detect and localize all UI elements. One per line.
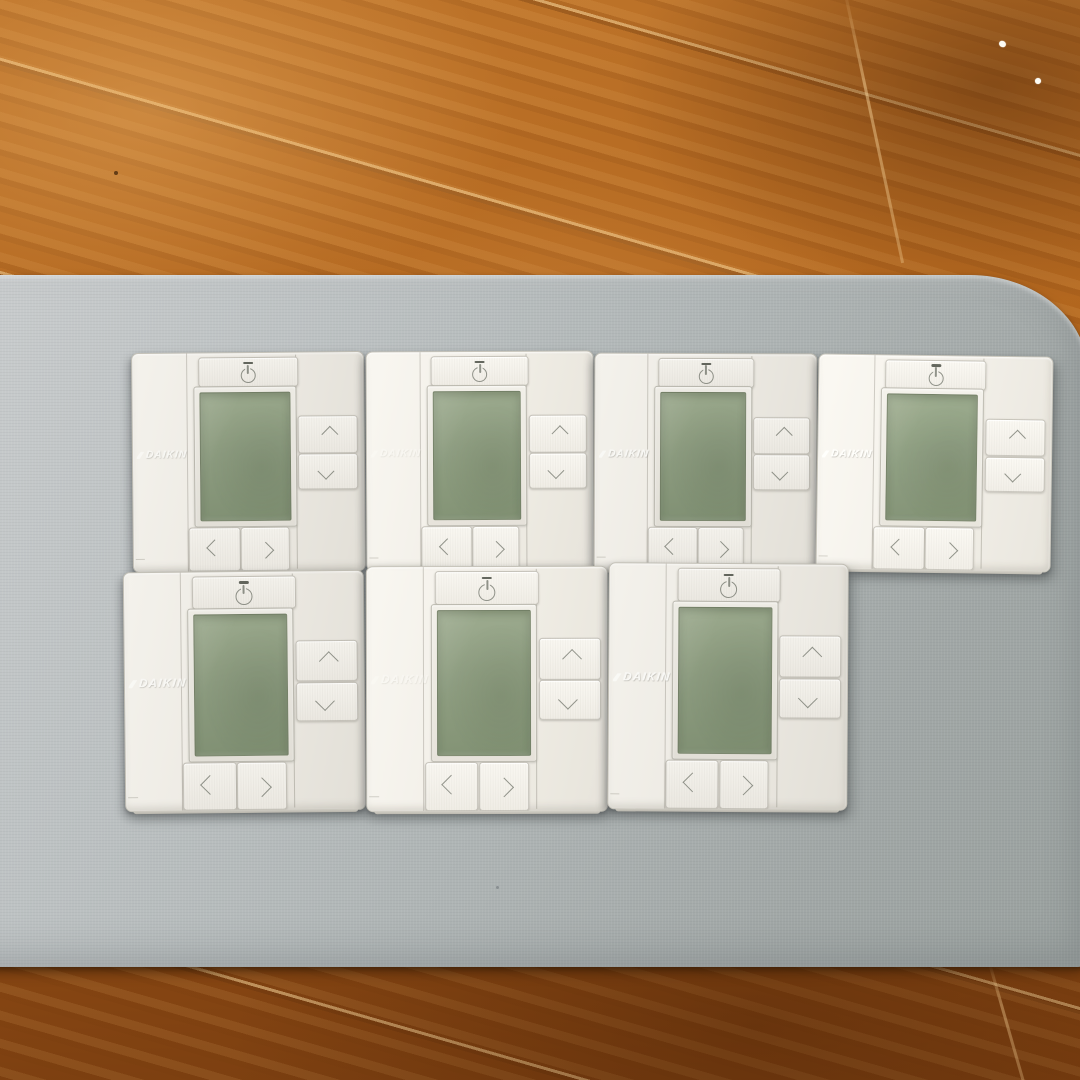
brand-panel: DAIKIN [367,352,422,570]
daikin-logo-mark [598,450,606,458]
daikin-logo-text: DAIKIN [381,674,430,686]
daikin-logo: DAIKIN [136,449,187,460]
panel-seam [369,797,378,798]
power-icon-bar [705,365,707,375]
daikin-logo-mark [612,673,621,682]
daikin-logo-text: DAIKIN [145,449,187,460]
chevron-up-icon [319,651,339,671]
daikin-remote-controller-bottom-2: DAIKIN [366,566,608,812]
brand-panel: DAIKIN [124,573,184,812]
brand-panel: DAIKIN [608,563,666,808]
chevron-down-icon [315,691,335,711]
chevron-right-icon [252,777,272,797]
lcd-screen [433,391,522,521]
daikin-remote-controller-top-3: DAIKIN [594,353,818,572]
power-icon [241,368,256,383]
up-button[interactable] [539,638,601,680]
brand-panel: DAIKIN [132,354,189,572]
daikin-logo-text: DAIKIN [379,448,421,459]
daikin-logo: DAIKIN [612,671,671,683]
chevron-left-icon [890,538,907,555]
up-button[interactable] [528,415,587,453]
lcd-screen [200,391,292,521]
panel-seam [597,557,606,558]
down-button[interactable] [539,680,601,720]
daikin-logo-mark [136,451,144,459]
chevron-up-icon [562,649,582,669]
daikin-logo: DAIKIN [821,449,873,461]
chevron-left-icon [200,775,220,795]
lcd-bezel [672,600,778,759]
daikin-logo-text: DAIKIN [139,677,188,690]
chevron-right-icon [712,541,729,558]
down-button[interactable] [779,678,841,718]
power-icon-bar [243,585,245,595]
power-icon-bar [479,364,481,374]
daikin-remote-controller-bottom-3: DAIKIN [607,562,849,810]
mat-fleck [496,886,499,889]
chevron-left-icon [664,538,681,555]
power-icon [928,371,943,386]
daikin-logo-mark [128,679,137,688]
power-button[interactable] [658,358,754,388]
power-button[interactable] [192,576,296,610]
daikin-logo: DAIKIN [370,448,421,459]
daikin-logo-text: DAIKIN [623,671,672,683]
wood-knot [114,171,118,175]
right-button[interactable] [241,527,290,571]
left-button[interactable] [425,762,479,810]
daikin-remote-controller-top-4: DAIKIN [816,353,1054,572]
panel-seam [611,794,620,795]
daikin-logo-text: DAIKIN [830,449,872,461]
chevron-up-icon [551,425,568,442]
right-button[interactable] [925,527,974,570]
daikin-logo: DAIKIN [370,674,429,686]
power-button[interactable] [435,571,539,605]
daikin-logo-text: DAIKIN [607,449,649,460]
power-button[interactable] [885,359,986,390]
chevron-right-icon [734,776,754,796]
power-led [724,574,734,577]
lcd-bezel [194,385,298,527]
brand-panel: DAIKIN [367,567,425,811]
power-button[interactable] [431,356,529,387]
chevron-left-icon [438,538,455,555]
chevron-up-icon [321,426,338,443]
daikin-logo-mark [370,450,378,458]
daikin-logo: DAIKIN [128,677,187,690]
power-led [239,581,249,584]
power-button[interactable] [198,356,298,387]
chevron-down-icon [558,690,578,710]
daikin-remote-controller-bottom-1: DAIKIN [123,570,367,813]
chevron-down-icon [798,688,818,708]
daikin-logo-mark [370,676,379,685]
power-icon [720,581,737,598]
up-button[interactable] [753,417,810,455]
power-icon-bar [728,577,730,587]
down-button[interactable] [984,456,1045,492]
power-icon [479,584,496,601]
power-icon [473,367,488,382]
up-button[interactable] [295,640,357,682]
chevron-up-icon [802,647,822,667]
right-button[interactable] [237,762,287,810]
chevron-down-icon [318,463,335,480]
lcd-bezel [187,607,295,762]
chevron-left-icon [207,539,224,556]
power-icon [699,369,714,384]
chevron-left-icon [442,775,462,795]
panel-seam [370,557,379,558]
chevron-left-icon [682,773,702,793]
daikin-logo: DAIKIN [598,449,649,460]
left-button[interactable] [422,526,473,570]
panel-seam [128,797,137,798]
panel-seam [136,559,145,560]
power-icon [235,588,252,605]
lcd-screen [659,392,746,521]
daikin-remote-controller-top-1: DAIKIN [131,351,366,573]
lcd-screen [885,393,978,521]
left-button[interactable] [183,762,237,810]
power-icon-bar [486,580,488,590]
right-button[interactable] [479,762,529,810]
chevron-down-icon [547,462,564,479]
photo-scene: DAIKIN [0,0,1080,1080]
brand-panel: DAIKIN [817,354,876,569]
right-button[interactable] [719,760,769,809]
lcd-screen [436,610,531,756]
left-button[interactable] [665,760,718,809]
power-icon-bar [247,365,249,375]
lcd-bezel [879,387,984,527]
right-button[interactable] [472,526,519,570]
lcd-bezel [653,386,752,527]
chevron-down-icon [771,464,788,481]
chevron-right-icon [941,542,958,559]
chevron-up-icon [1009,429,1026,446]
chevron-right-icon [494,778,514,798]
chevron-up-icon [775,427,792,444]
chevron-right-icon [257,542,274,559]
daikin-remote-controller-top-2: DAIKIN [366,351,595,572]
lcd-screen [678,606,772,753]
power-icon-bar [935,367,937,377]
down-button[interactable] [753,455,810,491]
power-led [482,576,492,579]
down-button[interactable] [529,453,588,489]
left-button[interactable] [189,527,241,571]
down-button[interactable] [296,681,358,721]
lcd-bezel [430,604,537,762]
down-button[interactable] [298,453,358,489]
daikin-logo-mark [821,450,829,458]
chevron-right-icon [488,541,505,558]
up-button[interactable] [779,635,841,678]
brand-panel: DAIKIN [595,354,649,570]
lcd-bezel [427,384,528,526]
chevron-down-icon [1004,466,1021,483]
panel-seam [819,556,828,557]
power-button[interactable] [677,568,780,602]
left-button[interactable] [872,526,925,569]
up-button[interactable] [298,415,358,453]
lcd-screen [194,613,289,756]
up-button[interactable] [985,419,1046,457]
